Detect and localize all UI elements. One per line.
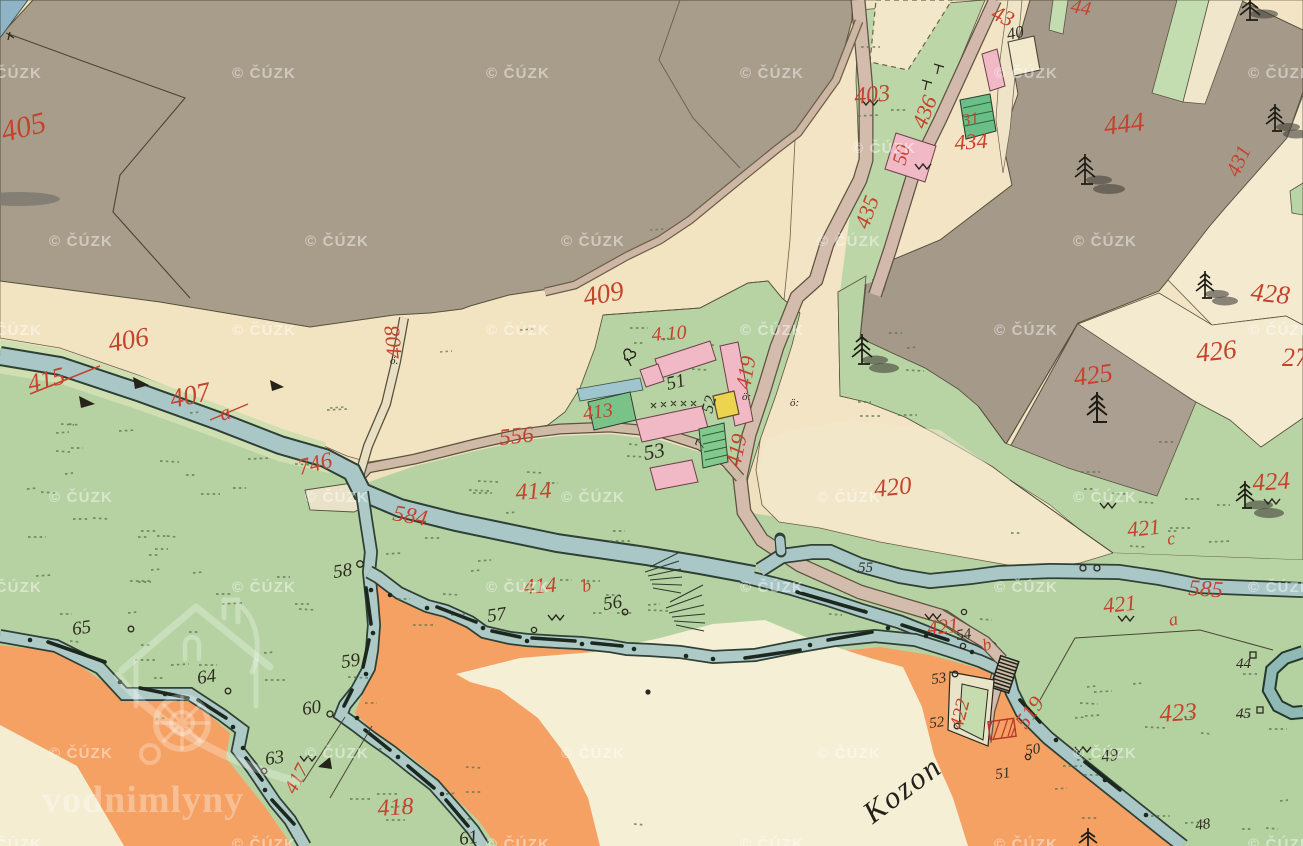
svg-text:© ČÚZK: © ČÚZK — [1248, 64, 1303, 82]
svg-text:© ČÚZK: © ČÚZK — [994, 64, 1058, 82]
svg-text:425: 425 — [1072, 358, 1115, 392]
svg-text:418: 418 — [377, 794, 415, 822]
svg-text:54: 54 — [955, 626, 973, 644]
svg-text:60: 60 — [301, 696, 323, 720]
svg-text:ö:: ö: — [790, 397, 799, 409]
svg-text:© ČÚZK: © ČÚZK — [994, 321, 1058, 339]
svg-text:© ČÚZK: © ČÚZK — [817, 232, 881, 250]
svg-text:423: 423 — [1159, 698, 1198, 728]
svg-text:© ČÚZK: © ČÚZK — [305, 488, 369, 506]
svg-text:61: 61 — [458, 827, 480, 846]
svg-text:421: 421 — [1102, 590, 1137, 618]
svg-text:413: 413 — [582, 399, 615, 425]
svg-text:© ČÚZK: © ČÚZK — [49, 744, 113, 762]
svg-text:44: 44 — [1069, 0, 1093, 20]
svg-text:53: 53 — [930, 670, 947, 688]
svg-text:© ČÚZK: © ČÚZK — [49, 488, 113, 506]
svg-text:© ČÚZK: © ČÚZK — [1073, 744, 1137, 762]
svg-text:© ČÚZK: © ČÚZK — [740, 578, 804, 596]
svg-text:50: 50 — [1024, 741, 1042, 759]
svg-text:© ČÚZK: © ČÚZK — [0, 321, 42, 339]
svg-text:© ČÚZK: © ČÚZK — [561, 744, 625, 762]
svg-text:421: 421 — [1126, 514, 1161, 542]
svg-text:64: 64 — [196, 665, 218, 689]
svg-text:vodnimlyny: vodnimlyny — [42, 779, 244, 821]
svg-text:© ČÚZK: © ČÚZK — [1248, 578, 1303, 596]
svg-text:424: 424 — [1252, 467, 1291, 497]
svg-text:59: 59 — [340, 649, 362, 673]
svg-text:408: 408 — [379, 325, 407, 360]
svg-text:© ČÚZK: © ČÚZK — [994, 578, 1058, 596]
svg-text:© ČÚZK: © ČÚZK — [305, 232, 369, 250]
svg-text:556: 556 — [498, 421, 535, 450]
svg-text:414: 414 — [515, 478, 553, 506]
svg-text:58: 58 — [332, 559, 354, 583]
svg-text:421: 421 — [926, 613, 960, 640]
svg-text:426: 426 — [1194, 334, 1238, 368]
svg-text:52: 52 — [928, 714, 946, 732]
svg-text:© ČÚZK: © ČÚZK — [486, 321, 550, 339]
svg-text:© ČÚZK: © ČÚZK — [1073, 488, 1137, 506]
svg-text:65: 65 — [71, 617, 93, 640]
svg-text:© ČÚZK: © ČÚZK — [852, 139, 916, 157]
svg-text:© ČÚZK: © ČÚZK — [49, 232, 113, 250]
svg-text:45: 45 — [1236, 706, 1252, 722]
svg-text:44: 44 — [1236, 656, 1252, 672]
svg-text:© ČÚZK: © ČÚZK — [740, 321, 804, 339]
svg-text:© ČÚZK: © ČÚZK — [1073, 232, 1137, 250]
svg-text:48: 48 — [1194, 816, 1212, 834]
svg-text:585: 585 — [1188, 575, 1224, 602]
svg-text:© ČÚZK: © ČÚZK — [486, 64, 550, 82]
svg-text:© ČÚZK: © ČÚZK — [994, 835, 1058, 846]
svg-text:© ČÚZK: © ČÚZK — [0, 578, 42, 596]
svg-text:© ČÚZK: © ČÚZK — [232, 321, 296, 339]
svg-text:© ČÚZK: © ČÚZK — [740, 835, 804, 846]
svg-text:© ČÚZK: © ČÚZK — [561, 488, 625, 506]
svg-text:434: 434 — [954, 128, 989, 155]
svg-text:© ČÚZK: © ČÚZK — [232, 64, 296, 82]
svg-text:© ČÚZK: © ČÚZK — [817, 488, 881, 506]
svg-text:© ČÚZK: © ČÚZK — [0, 835, 42, 846]
svg-text:© ČÚZK: © ČÚZK — [0, 64, 42, 82]
svg-text:53: 53 — [642, 438, 667, 465]
svg-text:© ČÚZK: © ČÚZK — [740, 64, 804, 82]
svg-text:© ČÚZK: © ČÚZK — [1248, 835, 1303, 846]
svg-text:© ČÚZK: © ČÚZK — [305, 744, 369, 762]
svg-text:© ČÚZK: © ČÚZK — [817, 744, 881, 762]
svg-text:ö:: ö: — [742, 391, 751, 403]
svg-text:4.10: 4.10 — [651, 322, 687, 346]
svg-text:31: 31 — [959, 108, 980, 130]
svg-text:63: 63 — [264, 747, 286, 770]
svg-text:© ČÚZK: © ČÚZK — [232, 835, 296, 846]
svg-text:© ČÚZK: © ČÚZK — [561, 232, 625, 250]
svg-text:27: 27 — [1282, 343, 1303, 372]
svg-text:56: 56 — [602, 591, 624, 615]
svg-text:© ČÚZK: © ČÚZK — [1248, 321, 1303, 339]
svg-text:428: 428 — [1249, 277, 1291, 310]
svg-text:403: 403 — [853, 80, 892, 110]
svg-text:© ČÚZK: © ČÚZK — [486, 835, 550, 846]
svg-text:© ČÚZK: © ČÚZK — [486, 578, 550, 596]
svg-text:51: 51 — [994, 765, 1011, 783]
svg-text:© ČÚZK: © ČÚZK — [232, 578, 296, 596]
svg-text:55: 55 — [858, 560, 874, 576]
svg-text:444: 444 — [1102, 106, 1146, 141]
